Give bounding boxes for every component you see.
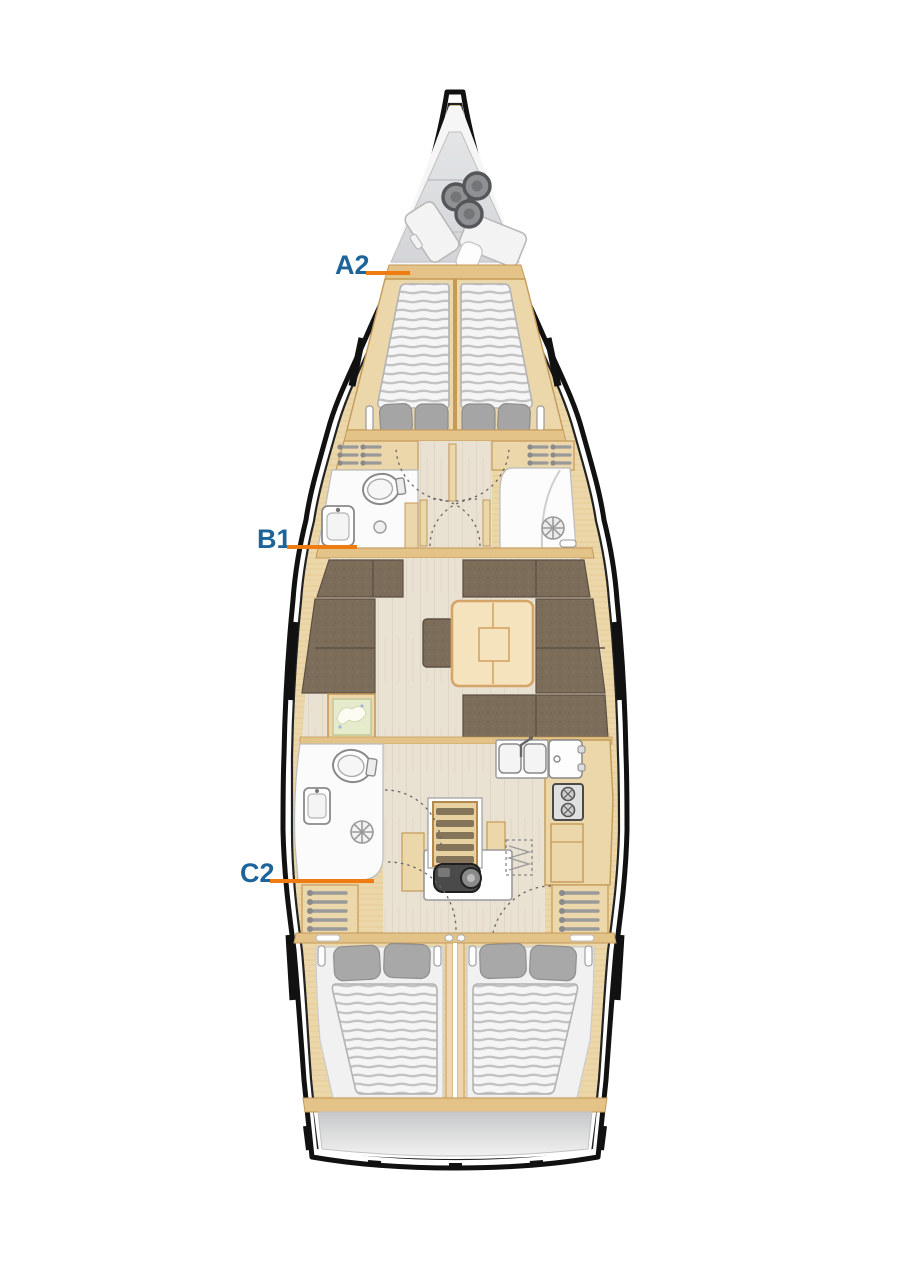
aft-cabins [294, 933, 616, 1100]
shower-drain-icon [374, 521, 386, 533]
fender-icon [456, 201, 482, 227]
shower-drain-fan-icon [351, 821, 373, 843]
cabinet [402, 833, 424, 891]
reading-light-icon [537, 406, 544, 431]
cabin-label-a2: A2 [335, 252, 370, 279]
aft-cabin-port [316, 943, 443, 1098]
saloon-bulkhead [316, 548, 594, 558]
fender-icon [464, 173, 490, 199]
hull-window [289, 935, 293, 1000]
forward-cabin [347, 265, 563, 435]
forward-shower [500, 468, 576, 548]
washbasin-icon [322, 506, 354, 546]
hull-window [306, 1126, 309, 1150]
saloon-table [452, 601, 533, 686]
forward-head [318, 470, 418, 548]
aft-bulkhead [294, 933, 616, 943]
galley-sink [496, 736, 548, 778]
reading-light-icon [469, 946, 476, 966]
yacht-plan-drawing [0, 0, 905, 1280]
stern-bulkhead [303, 1098, 607, 1112]
stove-icon [553, 784, 583, 820]
reading-light-icon [434, 946, 441, 966]
cabin-label-a2-line [366, 271, 410, 275]
washbasin-icon [304, 788, 330, 824]
pillow [529, 945, 577, 981]
reading-light-icon [366, 406, 373, 431]
aft-cabin-starboard [467, 943, 594, 1098]
pillow [479, 943, 526, 979]
door-leaf [420, 500, 427, 546]
pillow [333, 945, 381, 981]
reading-light-icon [585, 946, 592, 966]
hull-window [601, 1126, 604, 1150]
yacht-layout-plan: A2 B1 C2 [0, 0, 905, 1280]
reading-light-icon [318, 946, 325, 966]
cabin-label-b1-line [287, 545, 357, 549]
stern-locker [318, 1112, 592, 1156]
vent-icon [560, 540, 576, 547]
chart-table [328, 694, 375, 739]
hull-window [290, 622, 295, 700]
shower-drain-fan-icon [542, 517, 564, 539]
saloon [302, 548, 608, 740]
galley-cabinet [551, 824, 583, 882]
hull-window [615, 622, 620, 700]
ottoman [423, 619, 453, 667]
aft-head [295, 744, 383, 880]
pillow [383, 943, 430, 979]
engine [434, 864, 481, 892]
cabin-divider [446, 943, 464, 1100]
hull-window [617, 935, 621, 1000]
fridge [549, 740, 585, 778]
cabin-label-c2-line [270, 879, 374, 883]
transom [303, 1098, 607, 1159]
door-leaf [449, 444, 456, 501]
anchor-locker [390, 106, 528, 287]
door-leaf [483, 500, 490, 546]
